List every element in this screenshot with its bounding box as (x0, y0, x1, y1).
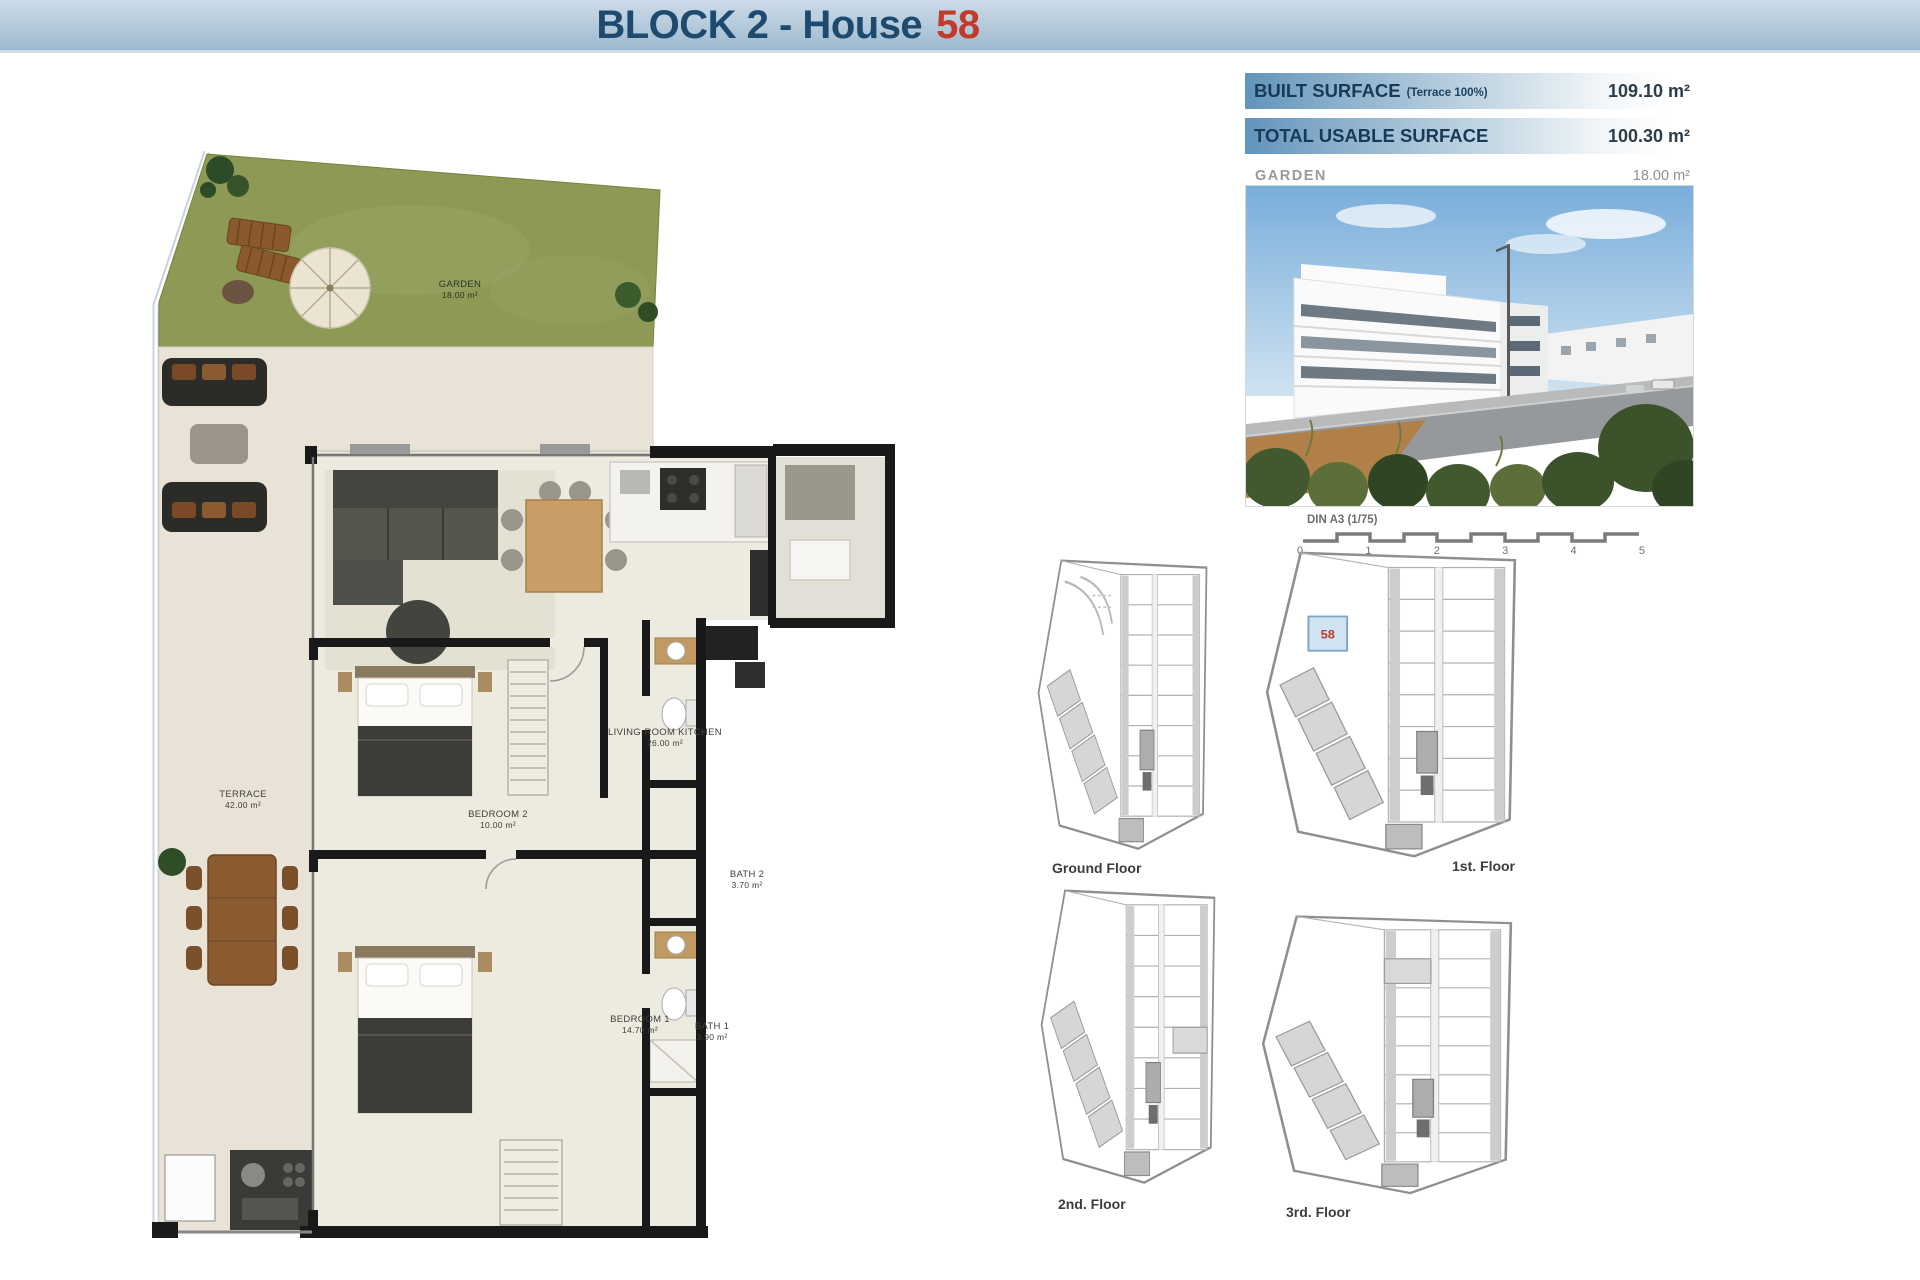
page-title-text: BLOCK 2 - House (596, 3, 922, 47)
wardrobe (508, 660, 548, 795)
rock (222, 280, 254, 304)
sink (620, 470, 650, 494)
nightstand (338, 672, 352, 692)
room-label-bath1: BATH 1 3.90 m² (695, 1021, 729, 1043)
room-label-bedroom1: BEDROOM 1 14.70 m² (610, 1014, 670, 1036)
lamp-post (1507, 244, 1510, 408)
surface-row-built: BUILT SURFACE (Terrace 100%) 109.10 m² (1245, 73, 1692, 109)
floor-label-third: 3rd. Floor (1286, 1204, 1351, 1220)
floor-label-ground: Ground Floor (1052, 860, 1141, 876)
bedroom-2 (338, 660, 548, 796)
nightstand (338, 952, 352, 972)
room-label-terrace: TERRACE 42.00 m² (219, 789, 267, 811)
car (1652, 380, 1674, 389)
page: BLOCK 2 - House58 (0, 0, 1920, 1280)
floor-label-second: 2nd. Floor (1058, 1196, 1126, 1212)
garden-surface-label: GARDEN (1245, 168, 1327, 184)
fridge (735, 465, 767, 537)
round-table (386, 600, 450, 664)
built-surface-value: 109.10 m² (1608, 81, 1692, 102)
nightstand (478, 952, 492, 972)
surface-table: BUILT SURFACE (Terrace 100%) 109.10 m² T… (1245, 73, 1692, 189)
bush (615, 282, 641, 308)
built-surface-note: (Terrace 100%) (1407, 87, 1488, 99)
mini-plan-first-floor: 58 (1262, 548, 1520, 866)
surface-row-usable: TOTAL USABLE SURFACE 100.30 m² (1245, 118, 1692, 154)
room-label-garden: GARDEN 18.00 m² (439, 279, 481, 301)
header-bar: BLOCK 2 - House58 (0, 0, 1920, 53)
marble-column (750, 550, 770, 616)
scale-zigzag (1303, 530, 1639, 544)
sofa (333, 470, 498, 508)
mini-plan-second-floor (1038, 886, 1218, 1192)
room-label-bedroom2: BEDROOM 2 10.00 m² (468, 809, 528, 831)
building-photo-art (1246, 186, 1693, 506)
garden-surface-value: 18.00 m² (1633, 168, 1692, 184)
tree (158, 848, 186, 876)
parasol (290, 248, 370, 328)
page-title: BLOCK 2 - House58 (596, 0, 979, 50)
mini-plan-third-floor (1258, 912, 1516, 1202)
usable-surface-value: 100.30 m² (1608, 126, 1692, 147)
cabinet (165, 1155, 215, 1221)
scale-label: DIN A3 (1/75) (1307, 514, 1378, 526)
house-number: 58 (936, 3, 980, 47)
outdoor-kitchen (230, 1150, 312, 1230)
wardrobe (785, 465, 855, 520)
rug (500, 1140, 562, 1225)
mini-plan-ground-floor (1035, 556, 1210, 858)
usable-surface-label: TOTAL USABLE SURFACE (1245, 125, 1488, 147)
nightstand (478, 672, 492, 692)
headboard (355, 946, 475, 958)
main-floor-plan: GARDEN 18.00 m² TERRACE 42.00 m² LIVING-… (150, 140, 895, 1245)
built-surface-label: BUILT SURFACE (1245, 80, 1401, 102)
main-floor-plan-drawing (150, 140, 895, 1245)
highlighted-unit: 58 (1308, 616, 1347, 650)
car (1626, 385, 1644, 393)
highlighted-house-number: 58 (1321, 628, 1335, 642)
room-label-bath2: BATH 2 3.70 m² (730, 869, 764, 891)
headboard (355, 666, 475, 678)
outdoor-table (190, 424, 248, 464)
floor-label-first: 1st. Floor (1452, 858, 1515, 874)
building-photo (1245, 185, 1694, 507)
garden-area (159, 154, 660, 347)
room-label-living: LIVING-ROOM KITCHEN 26.00 m² (608, 727, 722, 749)
cooktop (660, 468, 706, 510)
